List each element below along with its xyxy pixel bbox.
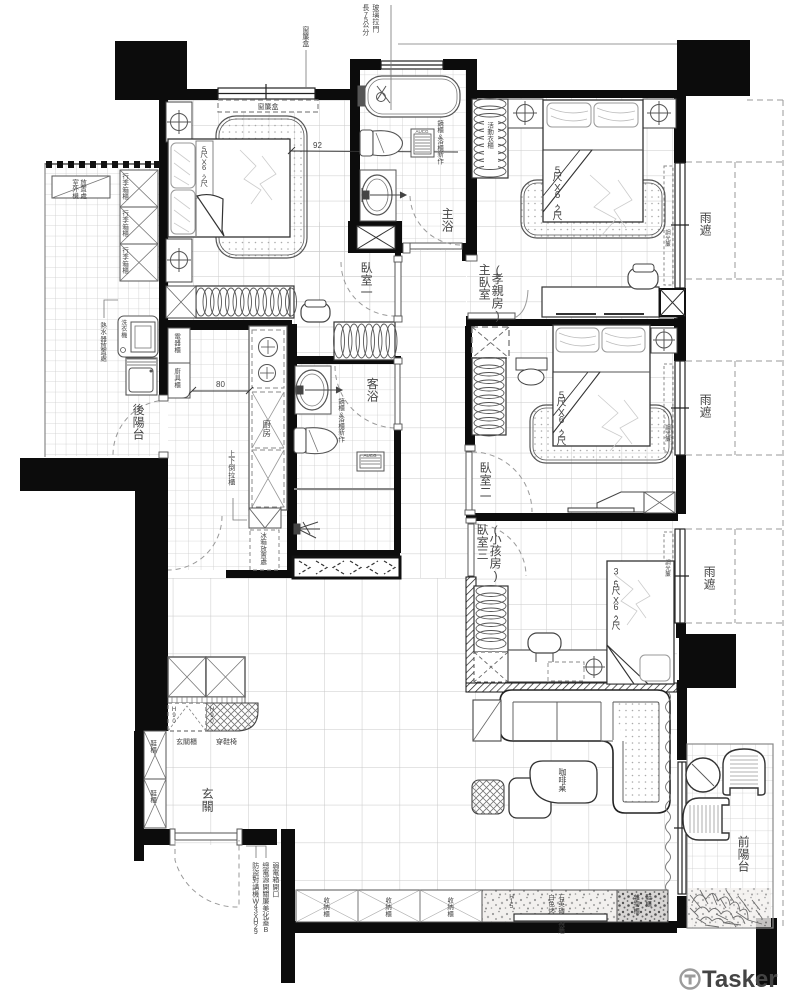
svg-text:客浴: 客浴 (367, 376, 379, 403)
svg-text:玄關櫃: 玄關櫃 (176, 737, 197, 746)
svg-text:室外機: 室外機 (72, 178, 79, 200)
svg-text:臥室二: 臥室二 (480, 461, 492, 500)
svg-text:Tasker: Tasker (702, 966, 778, 993)
svg-text:雜物櫃: 雜物櫃 (633, 893, 640, 915)
svg-text:鞋櫃: 鞋櫃 (150, 739, 157, 755)
svg-text:洗衣機: 洗衣機 (121, 319, 127, 339)
svg-text:臥室一: 臥室一 (361, 261, 373, 300)
svg-text:行李箱櫃: 行李箱櫃 (122, 209, 129, 238)
svg-text:行李箱櫃: 行李箱櫃 (122, 172, 129, 201)
svg-text:弱電箱開口: 弱電箱開口 (272, 862, 279, 899)
svg-text:熱水器放置處: 熱水器放置處 (100, 321, 107, 363)
svg-text:後陽台: 後陽台 (133, 403, 145, 442)
svg-text:咖啡桌: 咖啡桌 (558, 767, 566, 793)
svg-text:主臥室: 主臥室 (479, 263, 491, 302)
svg-text:H90: H90 (172, 707, 177, 725)
svg-text:主浴: 主浴 (442, 207, 454, 233)
svg-text:80: 80 (216, 380, 225, 389)
svg-text:玄關: 玄關 (202, 786, 214, 813)
svg-text:收納櫃: 收納櫃 (385, 896, 392, 918)
svg-text:雨遮: 雨遮 (700, 211, 712, 237)
svg-text:調光簾: 調光簾 (665, 424, 671, 443)
svg-text:穿鞋椅: 穿鞋椅 (216, 737, 237, 746)
svg-text:冰箱放置處: 冰箱放置處 (260, 531, 267, 567)
svg-text:臥室三: 臥室三 (477, 523, 489, 562)
svg-text:鞋櫃: 鞋櫃 (150, 789, 157, 805)
svg-text:雨遮: 雨遮 (704, 565, 716, 591)
svg-text:行李箱櫃: 行李箱櫃 (122, 246, 129, 275)
svg-text:調光簾: 調光簾 (665, 229, 671, 248)
svg-text:鞋櫃: 鞋櫃 (645, 893, 652, 909)
svg-text:玻璃拉門: 玻璃拉門 (372, 3, 379, 34)
svg-text:AUCG: AUCG (415, 129, 429, 134)
svg-text:H90: H90 (210, 707, 215, 725)
svg-text:雨遮: 雨遮 (700, 393, 712, 419)
svg-text:窗簾盒: 窗簾盒 (258, 102, 279, 111)
svg-text:廚具櫃: 廚具櫃 (174, 367, 181, 389)
svg-text:92: 92 (313, 141, 322, 150)
svg-text:總電源開關廉美化蓋B: 總電源開關廉美化蓋B (262, 861, 269, 934)
svg-text:收納櫃: 收納櫃 (323, 896, 330, 918)
svg-text:鏡櫃&浴櫃新作: 鏡櫃&浴櫃新作 (338, 397, 345, 444)
svg-text:收納櫃: 收納櫃 (447, 896, 454, 918)
svg-text:前陽台: 前陽台 (738, 834, 750, 874)
svg-text:鏡櫃&浴櫃新作: 鏡櫃&浴櫃新作 (437, 119, 444, 166)
svg-text:電器櫃: 電器櫃 (174, 333, 181, 354)
svg-text:活動衣櫃: 活動衣櫃 (487, 121, 494, 150)
svg-text:調光簾: 調光簾 (665, 559, 671, 578)
svg-text:AUCG: AUCG (363, 453, 377, 458)
svg-text:上下倒拉櫃: 上下倒拉櫃 (228, 449, 235, 487)
svg-text:放置處: 放置處 (80, 178, 87, 200)
svg-text:廚房: 廚房 (262, 419, 271, 438)
svg-text:窗簾盒: 窗簾盒 (302, 25, 309, 48)
